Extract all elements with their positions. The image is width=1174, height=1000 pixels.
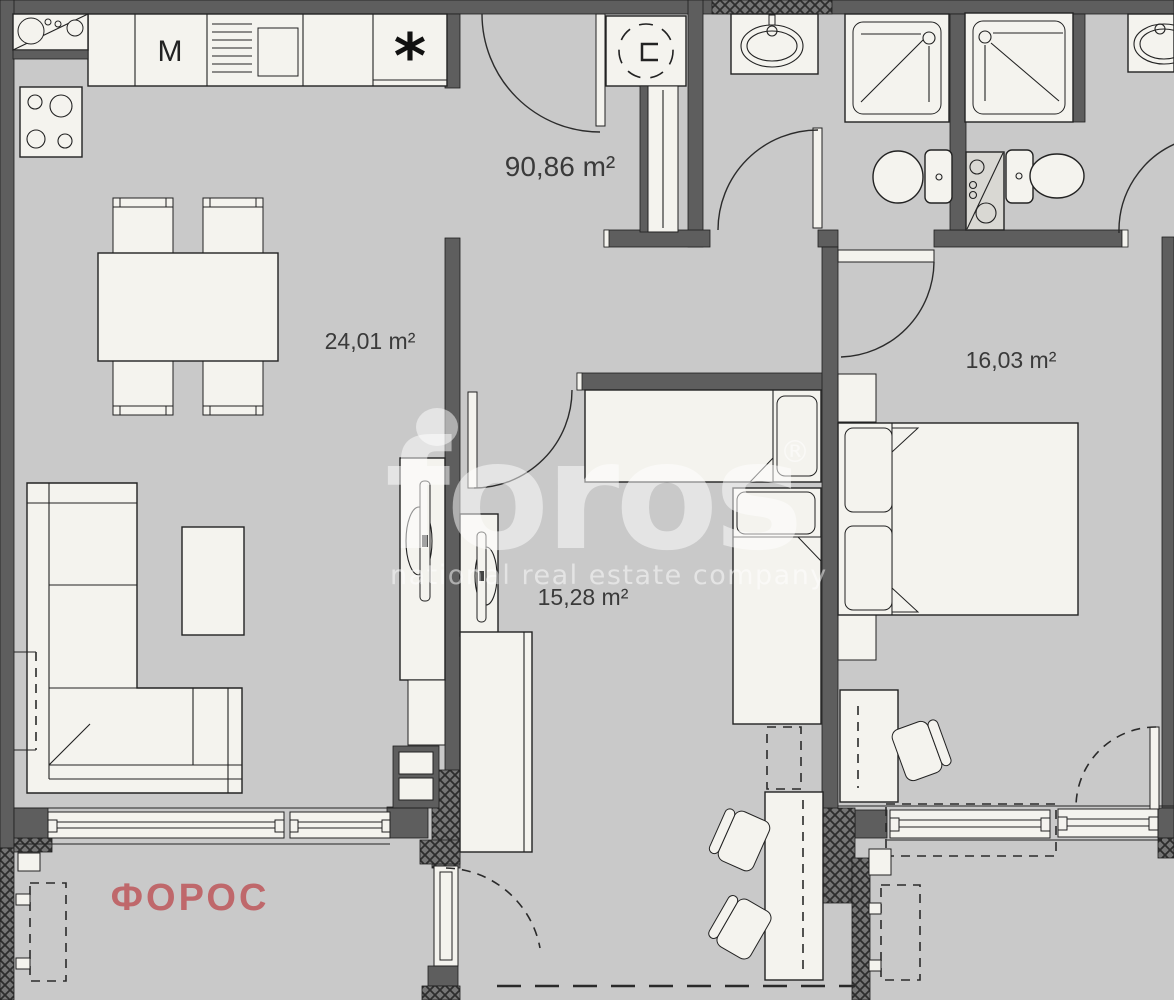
watermark-registered-icon: ® bbox=[780, 435, 810, 470]
window-living-1 bbox=[48, 812, 284, 838]
washing-machine-label: M bbox=[158, 35, 183, 68]
agency-name: ФОРОС bbox=[111, 877, 270, 919]
basin-icon bbox=[731, 14, 818, 74]
dining-chair bbox=[203, 198, 263, 253]
wall-bath-south-left bbox=[818, 230, 838, 247]
hatch-balcony2 bbox=[422, 986, 460, 1000]
wall-living-south-block bbox=[387, 807, 428, 838]
window-bedroom-2 bbox=[1058, 809, 1158, 837]
bed-icon bbox=[838, 423, 1078, 615]
nightstand bbox=[838, 374, 876, 422]
balcony-column bbox=[18, 853, 40, 871]
wall-left bbox=[0, 0, 14, 848]
floor-plan-canvas: M * bbox=[0, 0, 1174, 1000]
plumbing-shaft bbox=[966, 152, 1004, 230]
desk bbox=[765, 792, 823, 980]
wall-bath-south-mid bbox=[934, 230, 1122, 247]
total-area-label: 90,86 m² bbox=[505, 151, 616, 182]
shower-icon bbox=[845, 14, 949, 122]
door-jamb bbox=[577, 373, 582, 390]
wall-hall-south bbox=[604, 230, 710, 247]
shower-icon bbox=[965, 13, 1073, 122]
fridge-symbol: * bbox=[394, 20, 426, 93]
hall-cabinet bbox=[408, 680, 445, 745]
closet-wall bbox=[640, 86, 648, 232]
hatch-balcony1-corner bbox=[14, 838, 52, 852]
electrical-panel bbox=[393, 746, 439, 808]
watermark-tagline: national real estate company bbox=[390, 560, 828, 591]
nightstand bbox=[838, 614, 876, 660]
dining-table bbox=[98, 253, 278, 361]
wall-right bbox=[1162, 237, 1174, 808]
floor-plan-page: M * bbox=[0, 0, 1174, 1000]
dashed-furniture-tick bbox=[869, 903, 881, 914]
boiler-cabinet bbox=[606, 16, 686, 86]
wall-top bbox=[0, 0, 1174, 14]
dining-chair bbox=[113, 360, 173, 415]
stove-icon bbox=[20, 87, 82, 157]
wall-bedroom-window-column bbox=[855, 810, 887, 838]
dashed-furniture-tick bbox=[16, 958, 30, 969]
dashed-furniture-tick bbox=[16, 894, 30, 905]
wardrobe bbox=[460, 632, 532, 852]
dining-chair bbox=[203, 360, 263, 415]
hatch-bedroom-corner bbox=[822, 808, 855, 903]
toilet-icon bbox=[873, 150, 952, 203]
wall-balcony2-block bbox=[428, 966, 458, 986]
watermark: foros ® national real estate company bbox=[385, 408, 828, 591]
hatch-right-parapet bbox=[1158, 838, 1174, 858]
basin-icon bbox=[1128, 14, 1174, 72]
fridge-icon: * bbox=[394, 20, 426, 93]
wall-bedroom-window-end bbox=[1158, 808, 1174, 838]
balcony-column bbox=[869, 849, 891, 875]
hatch-balcony-door bbox=[420, 840, 460, 864]
watermark-logo: foros bbox=[385, 410, 800, 584]
wall-bath2-inner bbox=[1072, 14, 1085, 122]
wall-closet-right bbox=[688, 0, 703, 247]
hatch-balcony3-parapet bbox=[852, 858, 870, 1000]
door-jamb bbox=[604, 230, 609, 247]
washing-machine-icon: M bbox=[158, 35, 183, 68]
desk bbox=[840, 690, 898, 802]
door-jamb bbox=[1122, 230, 1128, 247]
window-living-2 bbox=[290, 812, 390, 838]
coffee-table bbox=[182, 527, 244, 635]
window-bedroom-1 bbox=[890, 810, 1050, 838]
hatch-above-bath1 bbox=[712, 0, 832, 14]
wall-room2-north bbox=[577, 373, 823, 390]
dining-chair bbox=[113, 198, 173, 253]
living-room-area-label: 24,01 m² bbox=[325, 328, 416, 354]
wall-rooms-divider bbox=[822, 247, 838, 830]
sink-icon bbox=[13, 14, 88, 59]
dashed-furniture-tick bbox=[869, 960, 881, 971]
hatch-left-parapet bbox=[0, 848, 14, 1000]
bedroom-area-label: 16,03 m² bbox=[966, 347, 1057, 373]
wall-balcony1-block bbox=[14, 808, 48, 840]
